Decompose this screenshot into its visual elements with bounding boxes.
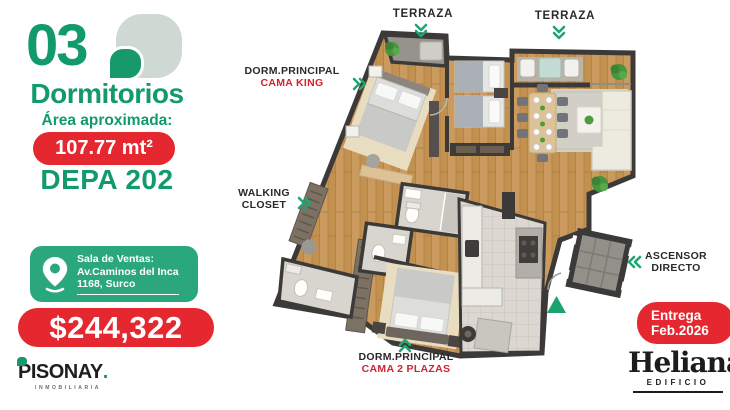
entrance-marker: [547, 296, 566, 313]
bar-counter: [474, 318, 512, 352]
building-logo: Heliana EDIFICIO: [628, 348, 728, 393]
sink: [392, 234, 406, 245]
developer-tagline: INMOBILIARIA: [18, 385, 128, 391]
chevron-right-icon: [352, 77, 368, 91]
pisonay-leaf-icon: [17, 357, 27, 366]
label-elevator-line1: ASCENSOR: [641, 251, 711, 263]
sales-office-title: Sala de Ventas:: [77, 253, 179, 266]
counter: [462, 288, 502, 306]
label-master-king-line2: CAMA KING: [234, 78, 350, 90]
location-pin-icon: [40, 255, 70, 293]
sink: [404, 188, 421, 199]
price-badge: $244,322: [18, 308, 214, 347]
developer-name: PISONAY: [18, 361, 103, 383]
label-walking-line1: WALKING: [231, 188, 297, 200]
delivery-line2: Feb.2026: [651, 323, 730, 338]
area-label: Área aproximada:: [0, 112, 214, 130]
sales-office-address2: 1168, Surco: [77, 278, 179, 291]
chevron-right-icon: [297, 196, 313, 210]
kitchen-sink: [465, 240, 479, 257]
label-terraza-left: TERRAZA: [385, 9, 461, 21]
developer-logo: PISONAY. INMOBILIARIA: [18, 361, 128, 391]
building-name: Heliana: [628, 348, 728, 378]
dresser: [429, 101, 439, 157]
delivery-line1: Entrega: [651, 308, 730, 323]
logo-underline: [633, 391, 723, 393]
sales-office-card: Sala de Ventas: Av.Caminos del Inca 1168…: [30, 246, 198, 302]
label-master-king-line1: DORM.PRINCIPAL: [234, 66, 350, 78]
unit-number: DEPA 202: [0, 164, 214, 196]
stove: [519, 236, 538, 263]
label-master-king: DORM.PRINCIPAL CAMA KING: [234, 66, 350, 89]
label-elevator-line2: DIRECTO: [641, 263, 711, 275]
chevron-left-icon: [626, 255, 642, 269]
label-master-2plazas-line1: DORM.PRINCIPAL: [346, 352, 466, 364]
area-value: 107.77 mt²: [55, 137, 153, 160]
label-master-2plazas: DORM.PRINCIPAL CAMA 2 PLAZAS: [346, 352, 466, 375]
price-value: $244,322: [49, 310, 182, 346]
label-walking-line2: CLOSET: [231, 200, 297, 212]
sales-office-address1: Av.Caminos del Inca: [77, 266, 179, 279]
chevron-down-icon: [552, 25, 566, 41]
chevron-down-icon: [414, 23, 428, 39]
label-elevator: ASCENSOR DIRECTO: [641, 251, 711, 274]
area-value-badge: 107.77 mt²: [33, 132, 175, 165]
elevator: [562, 227, 635, 299]
label-master-2plazas-line2: CAMA 2 PLAZAS: [346, 364, 466, 376]
developer-dot: .: [103, 361, 109, 383]
chevron-up-icon: [398, 337, 412, 353]
page-title: Dormitorios: [0, 78, 214, 110]
leaf-accent-icon: [107, 46, 144, 81]
label-walking-closet: WALKING CLOSET: [231, 188, 297, 211]
label-terraza-right: TERRAZA: [527, 11, 603, 23]
stool: [302, 240, 317, 255]
delivery-badge: Entrega Feb.2026: [637, 302, 730, 344]
bedroom-count: 03: [26, 12, 87, 79]
building-subtitle: EDIFICIO: [628, 378, 728, 387]
pouf: [366, 154, 380, 168]
